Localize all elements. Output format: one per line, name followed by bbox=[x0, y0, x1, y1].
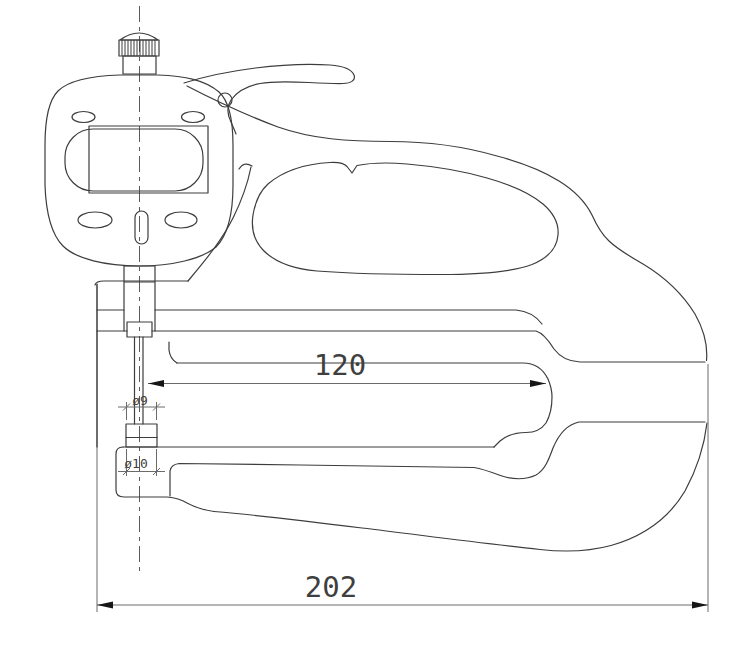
spindle-rod bbox=[135, 337, 144, 424]
dim-202-arrow-right bbox=[692, 602, 708, 609]
upper-contact bbox=[126, 424, 157, 447]
dim-throat-depth: 120 bbox=[148, 348, 546, 387]
dim-120-arrow-right bbox=[530, 380, 546, 387]
throat-slot-left-corner bbox=[169, 342, 177, 363]
dim-202-arrow-left bbox=[97, 602, 113, 609]
dim-anvil-diameter: ø10 bbox=[118, 449, 165, 476]
thickness-gauge-technical-drawing: ø9 ø10 120 202 bbox=[0, 0, 733, 663]
arm-top-face-line bbox=[97, 310, 542, 324]
dim-overall-length: 202 bbox=[97, 364, 708, 612]
measuring-spindle bbox=[126, 322, 157, 447]
dim-202-label: 202 bbox=[305, 570, 357, 604]
body-outer-top bbox=[187, 86, 707, 361]
dim-o10-label: ø10 bbox=[124, 456, 147, 471]
grip-cutout bbox=[252, 162, 558, 274]
frame-bridge-notch bbox=[239, 164, 252, 169]
dim-120-arrow-left bbox=[148, 380, 164, 387]
dim-120-label: 120 bbox=[314, 348, 366, 382]
button-bottom-right bbox=[165, 212, 197, 228]
dim-o9-label: ø9 bbox=[132, 393, 148, 408]
body-outer-bottom bbox=[214, 423, 707, 551]
lcd-display bbox=[65, 126, 208, 193]
display-window bbox=[65, 129, 203, 191]
frame-body bbox=[95, 86, 707, 612]
button-center-slot bbox=[135, 211, 148, 244]
dim-contact-diameter: ø9 bbox=[118, 393, 165, 420]
button-top-right bbox=[182, 112, 205, 123]
jaw-inner-edge bbox=[170, 422, 705, 496]
display-frame bbox=[89, 126, 208, 193]
arm-bottom-face-line bbox=[97, 331, 705, 362]
button-top-left bbox=[72, 112, 95, 123]
button-bottom-left bbox=[78, 212, 112, 228]
drawing-svg: ø9 ø10 120 202 bbox=[0, 0, 733, 663]
frame-bezel-hug-edge bbox=[188, 167, 251, 281]
contact-anvil-block bbox=[126, 424, 157, 447]
